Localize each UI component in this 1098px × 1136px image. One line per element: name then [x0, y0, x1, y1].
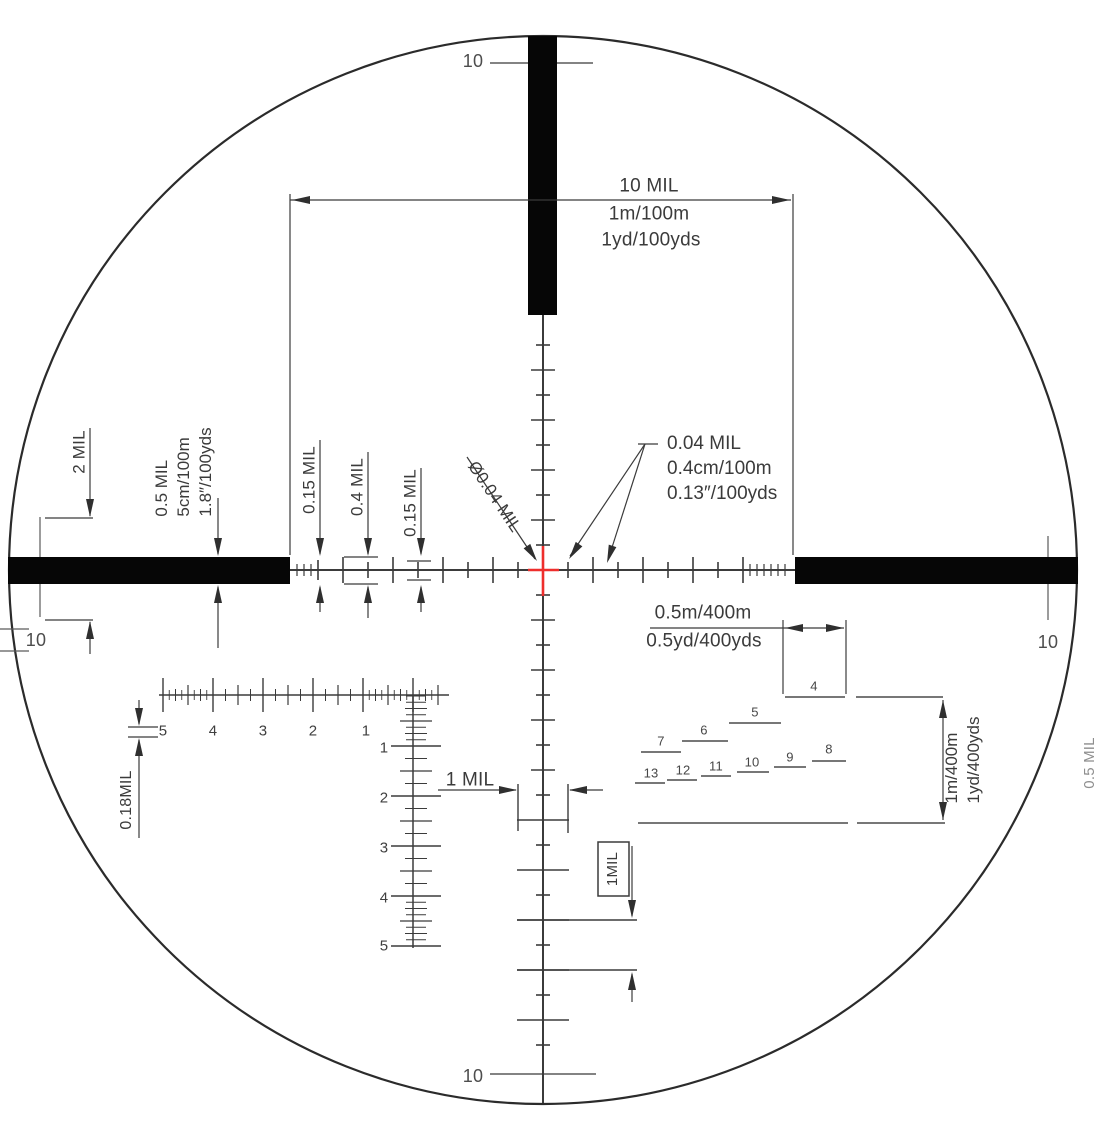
dim-ten-mil-metric: 1m/100m [609, 205, 690, 226]
rangefinder-number: 10 [745, 756, 760, 769]
dim-ten-mil-imperial: 1yd/100yds [601, 231, 700, 252]
edge-note-half-mil: 0.5 MIL [1082, 737, 1098, 788]
reticle-diagram-canvas [0, 0, 1098, 1136]
dim-tick-left-inner: 0.15 MIL [402, 469, 421, 537]
corner-mil-scale [159, 678, 449, 948]
dim-tick-left-mid: 0.4 MIL [349, 458, 368, 516]
mil-scale-vertical-number: 4 [380, 891, 389, 906]
dim-half-m-400-metric: 0.5m/400m [655, 604, 752, 625]
dim-one-m-400-metric: 1m/400m [941, 717, 963, 804]
rangefinder-number: 4 [810, 680, 817, 693]
dim-scale-tick: 0.18MIL [118, 770, 136, 829]
mil-scale-vertical-number: 5 [380, 939, 389, 954]
rangefinder-number: 11 [709, 760, 723, 773]
rangefinder-number: 9 [786, 751, 793, 764]
edge-mark-top: 10 [463, 52, 483, 72]
mil-scale-horizontal-number: 4 [209, 724, 218, 739]
dim-half-mil-imperial: 1.8″/100yds [195, 427, 217, 516]
rangefinder-number: 12 [676, 764, 691, 777]
rangefinder-number: 7 [657, 735, 664, 748]
mil-scale-horizontal-number: 1 [362, 724, 371, 739]
dim-half-mil-block: 0.5 MIL 5cm/100m 1.8″/100yds [151, 427, 217, 516]
mil-scale-horizontal-number: 2 [309, 724, 318, 739]
rangefinder-number: 6 [700, 724, 707, 737]
rangefinder-number: 5 [751, 706, 758, 719]
rangefinder-number: 13 [644, 767, 659, 780]
dim-one-mil-boxed: 1MIL [605, 852, 622, 886]
dim-center-dot-block: 0.04 MIL 0.4cm/100m 0.13″/100yds [667, 431, 777, 506]
rangefinder-number: 8 [825, 743, 832, 756]
dim-half-mil-metric: 5cm/100m [173, 427, 195, 516]
dim-half-mil-title: 0.5 MIL [151, 427, 173, 516]
edge-mark-bottom: 10 [463, 1067, 483, 1087]
edge-mark-left: 10 [26, 631, 46, 651]
dim-ten-mil-title: 10 MIL [619, 177, 678, 198]
mil-scale-vertical-number: 3 [380, 841, 389, 856]
dim-one-m-400-block: 1m/400m 1yd/400yds [941, 717, 985, 804]
dimension-arrows [86, 196, 947, 990]
dim-center-dot-metric: 0.4cm/100m [667, 456, 777, 481]
mil-scale-vertical-number: 1 [380, 741, 389, 756]
dim-tick-left-outer: 0.15 MIL [301, 446, 320, 514]
mil-scale-vertical-number: 2 [380, 791, 389, 806]
reticle-dimension-drawing: 10 10 10 10 10 MIL 1m/100m 1yd/100yds 2 … [0, 0, 1098, 1136]
dim-two-mil: 2 MIL [71, 430, 90, 474]
dim-center-dot-title: 0.04 MIL [667, 431, 777, 456]
dim-center-dot-imperial: 0.13″/100yds [667, 481, 777, 506]
dim-one-m-400-imperial: 1yd/400yds [963, 717, 985, 804]
dim-one-mil: 1 MIL [446, 771, 495, 792]
edge-mark-right: 10 [1038, 633, 1058, 653]
dim-half-m-400-imperial: 0.5yd/400yds [646, 632, 761, 653]
mil-scale-horizontal-number: 3 [259, 724, 268, 739]
mil-scale-horizontal-number: 5 [159, 724, 168, 739]
